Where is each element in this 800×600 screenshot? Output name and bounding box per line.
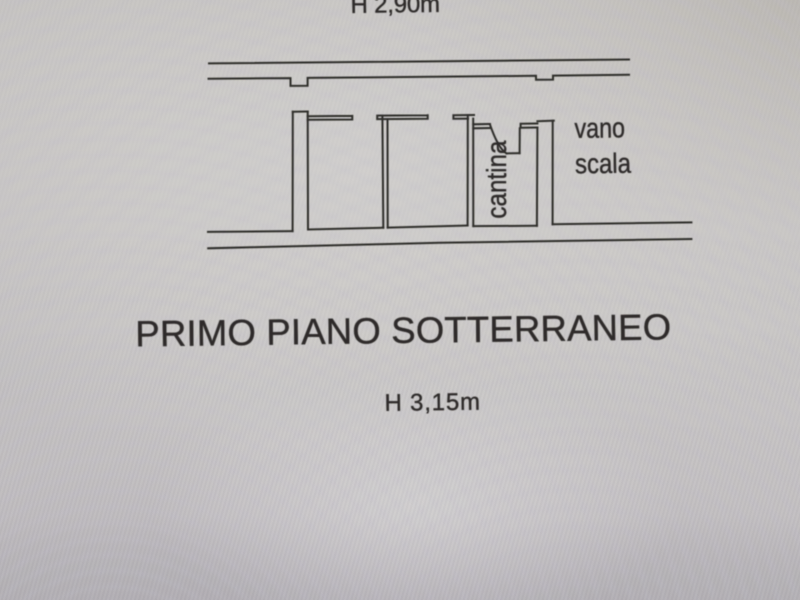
svg-text:scala: scala — [575, 148, 632, 180]
svg-text:cantina: cantina — [481, 140, 512, 218]
svg-text:H 3,15m: H 3,15m — [384, 389, 481, 417]
svg-text:PRIMO PIANO SOTTERRANEO: PRIMO PIANO SOTTERRANEO — [135, 306, 671, 354]
svg-text:H 2,90m: H 2,90m — [350, 0, 440, 19]
svg-text:vano: vano — [574, 112, 625, 144]
